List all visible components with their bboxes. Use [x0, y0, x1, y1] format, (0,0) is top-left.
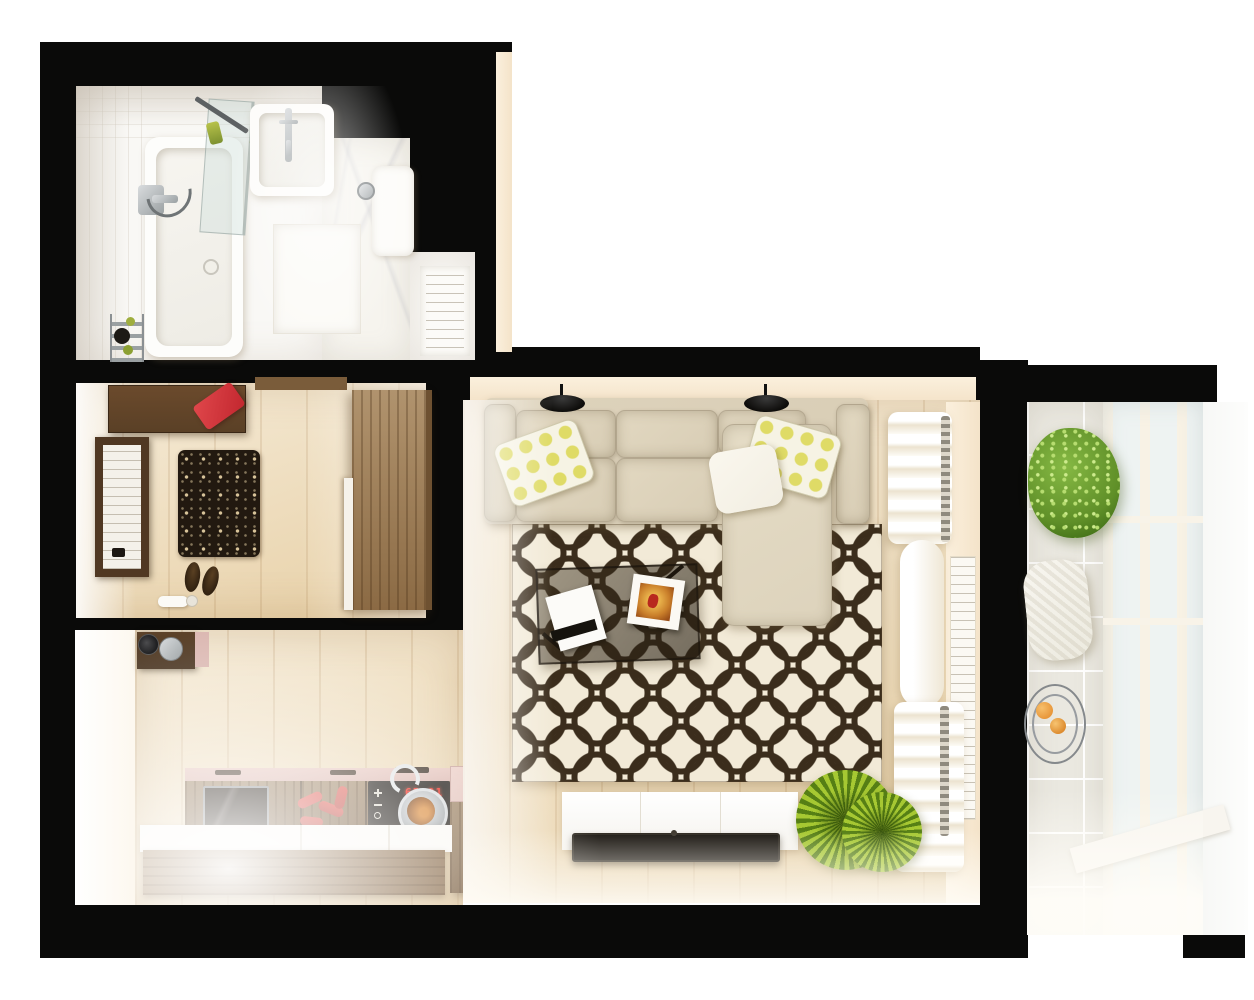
countertop-seam-2: [388, 825, 390, 852]
cabinet-handle-1: [215, 770, 241, 775]
window-exterior-glow: [1203, 402, 1248, 935]
kettle: [159, 637, 183, 661]
cooktop-plus-icon-v: [377, 789, 379, 797]
window-mullion-2: [1103, 618, 1203, 625]
cabinet-handle-2: [330, 770, 356, 775]
oven: [203, 786, 269, 828]
basin-faucet-handle-2: [286, 140, 291, 156]
countertop-seam-1: [300, 825, 302, 852]
tv-camera-dot: [671, 830, 677, 836]
wall-lamp-2: [744, 395, 789, 412]
cabinet-seam-2: [365, 781, 367, 828]
wardrobe: [352, 390, 432, 610]
cosmetics-item: [158, 596, 188, 607]
kitchen-pink-wall-bit: [195, 632, 209, 667]
curtain-middle-fold: [900, 540, 944, 708]
balcony-leafy-plant: [1028, 428, 1120, 538]
curtain-ring-tape-bottom: [940, 706, 949, 836]
curtain-ring-tape-top: [941, 416, 950, 542]
bathtub-drain: [203, 259, 219, 275]
wall-face-sliver: [496, 52, 512, 352]
sofa-seat-cushion-2: [616, 458, 718, 522]
toilet-flush-button: [357, 182, 375, 200]
hallway-rug: [178, 450, 260, 557]
white-pillow: [707, 443, 785, 516]
coffee-grinder: [138, 634, 159, 655]
orange-1: [1036, 702, 1053, 719]
white-countertop: [140, 825, 452, 852]
sofa-armrest-right: [836, 404, 870, 524]
wall-lamp-1: [540, 395, 585, 412]
shower-tray-marble: [273, 224, 361, 334]
basin-faucet-handle-1: [279, 120, 298, 124]
tv: [572, 833, 780, 862]
sofa-back-cushion-2: [616, 410, 718, 458]
cooktop-minus-icon: [374, 804, 382, 806]
towel-green-1: [126, 317, 135, 326]
toilet: [372, 166, 414, 256]
apartment-floorplan-render: 65:91: [0, 0, 1254, 1000]
orange-2: [1050, 718, 1066, 734]
kitchen-wall-glare-strip: [75, 630, 135, 905]
wall-balcony-top: [1027, 365, 1217, 402]
towel-rack-knob: [114, 328, 130, 344]
wash-basin-bowl: [259, 113, 325, 187]
pan-food: [407, 797, 435, 825]
wardrobe-open-door: [344, 478, 353, 610]
towel-green-2: [123, 345, 133, 355]
bathroom-door-panels: [426, 274, 464, 348]
shelf-over-wardrobe: [255, 377, 347, 390]
kitchen-island-front: [143, 850, 445, 895]
wicker-pouf: [1021, 557, 1095, 663]
wall-living-balcony: [980, 360, 1028, 940]
window-mullion-1: [1103, 516, 1203, 523]
cosmetics-cap: [186, 595, 198, 607]
wall-bottom-band: [135, 905, 1028, 958]
spiky-plant-small: [842, 792, 922, 872]
cooktop-power-icon: [374, 812, 381, 819]
entrance-door-handle: [112, 548, 125, 557]
